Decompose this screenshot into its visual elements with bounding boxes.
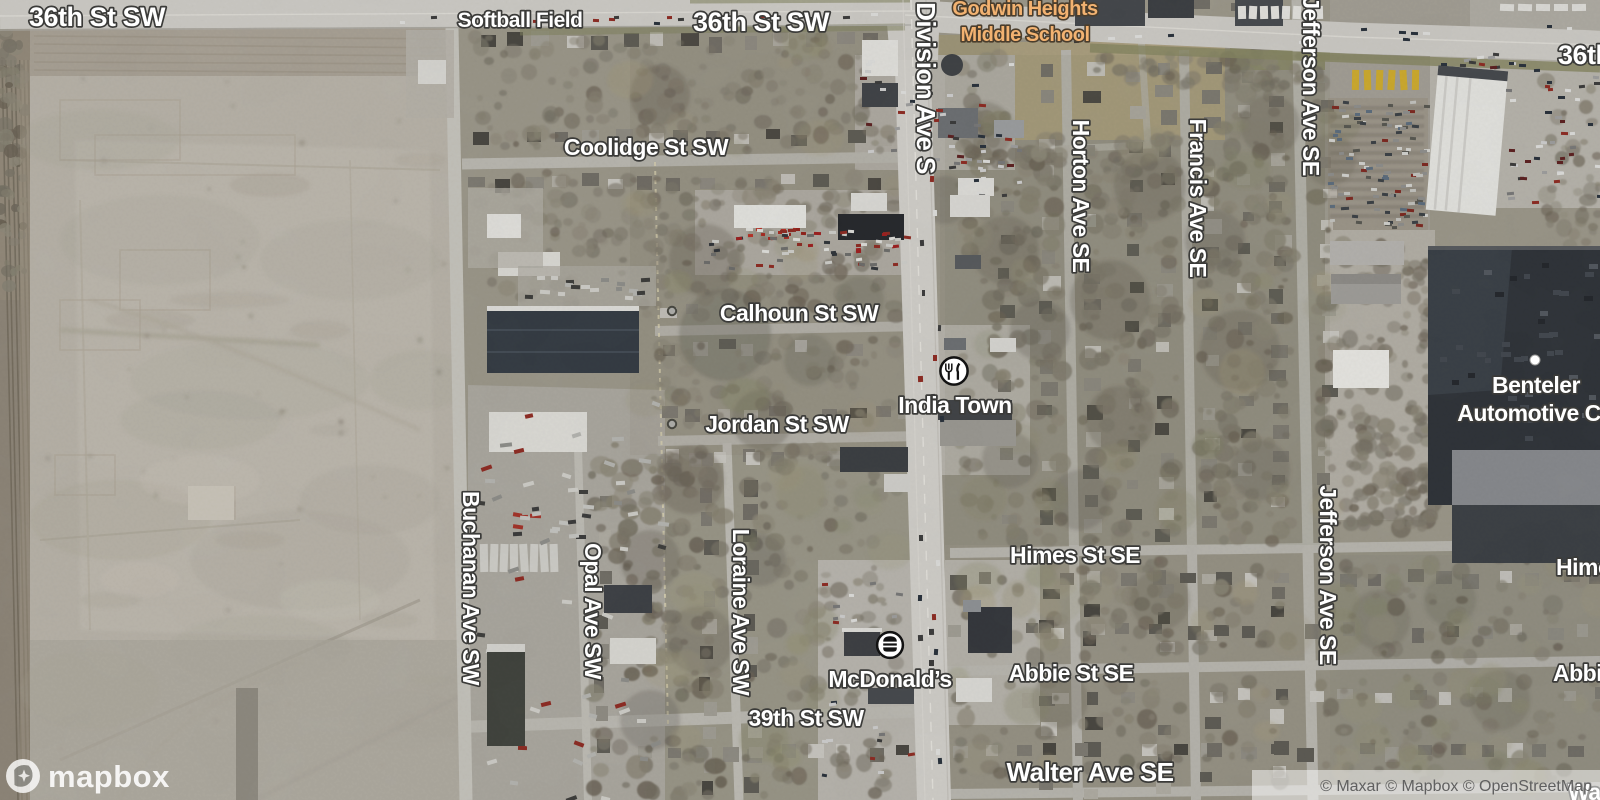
svg-text:Abbie St: Abbie St: [1553, 660, 1600, 686]
svg-text:Buchanan Ave SW: Buchanan Ave SW: [458, 491, 484, 686]
svg-text:Jordan St SW: Jordan St SW: [705, 411, 849, 437]
svg-text:36th St SW: 36th St SW: [1558, 40, 1600, 70]
svg-text:Francis Ave SE: Francis Ave SE: [1185, 119, 1211, 278]
svg-text:Godwin Heights: Godwin Heights: [952, 0, 1098, 20]
svg-text:Automotive Cor: Automotive Cor: [1457, 400, 1600, 426]
svg-text:Softball Field: Softball Field: [458, 9, 583, 32]
svg-text:Abbie St SE: Abbie St SE: [1009, 660, 1134, 686]
svg-text:India Town: India Town: [898, 392, 1011, 418]
svg-text:Division Ave S: Division Ave S: [911, 2, 941, 174]
svg-text:mapbox: mapbox: [48, 759, 170, 794]
svg-text:McDonald’s: McDonald’s: [828, 666, 951, 692]
svg-text:Jefferson Ave SE: Jefferson Ave SE: [1298, 0, 1324, 176]
svg-text:Loraine Ave SW: Loraine Ave SW: [728, 529, 754, 696]
svg-text:36th St SW: 36th St SW: [29, 2, 166, 32]
svg-text:Horton Ave SE: Horton Ave SE: [1068, 120, 1094, 273]
svg-text:Calhoun St SW: Calhoun St SW: [720, 300, 879, 326]
svg-text:Himes St: Himes St: [1556, 554, 1600, 580]
svg-text:36th St SW: 36th St SW: [693, 7, 830, 37]
svg-text:39th St SW: 39th St SW: [748, 705, 864, 731]
svg-text:Opal Ave SW: Opal Ave SW: [580, 543, 606, 680]
svg-text:Middle School: Middle School: [960, 24, 1089, 46]
svg-text:Walter Ave SE: Walter Ave SE: [1007, 757, 1174, 787]
svg-text:© Maxar © Mapbox © OpenStreetM: © Maxar © Mapbox © OpenStreetMap: [1320, 778, 1592, 795]
svg-text:Himes St SE: Himes St SE: [1010, 542, 1140, 568]
svg-text:Coolidge St SW: Coolidge St SW: [564, 134, 729, 160]
svg-text:Jefferson Ave SE: Jefferson Ave SE: [1315, 485, 1341, 665]
svg-text:Benteler: Benteler: [1492, 372, 1581, 398]
